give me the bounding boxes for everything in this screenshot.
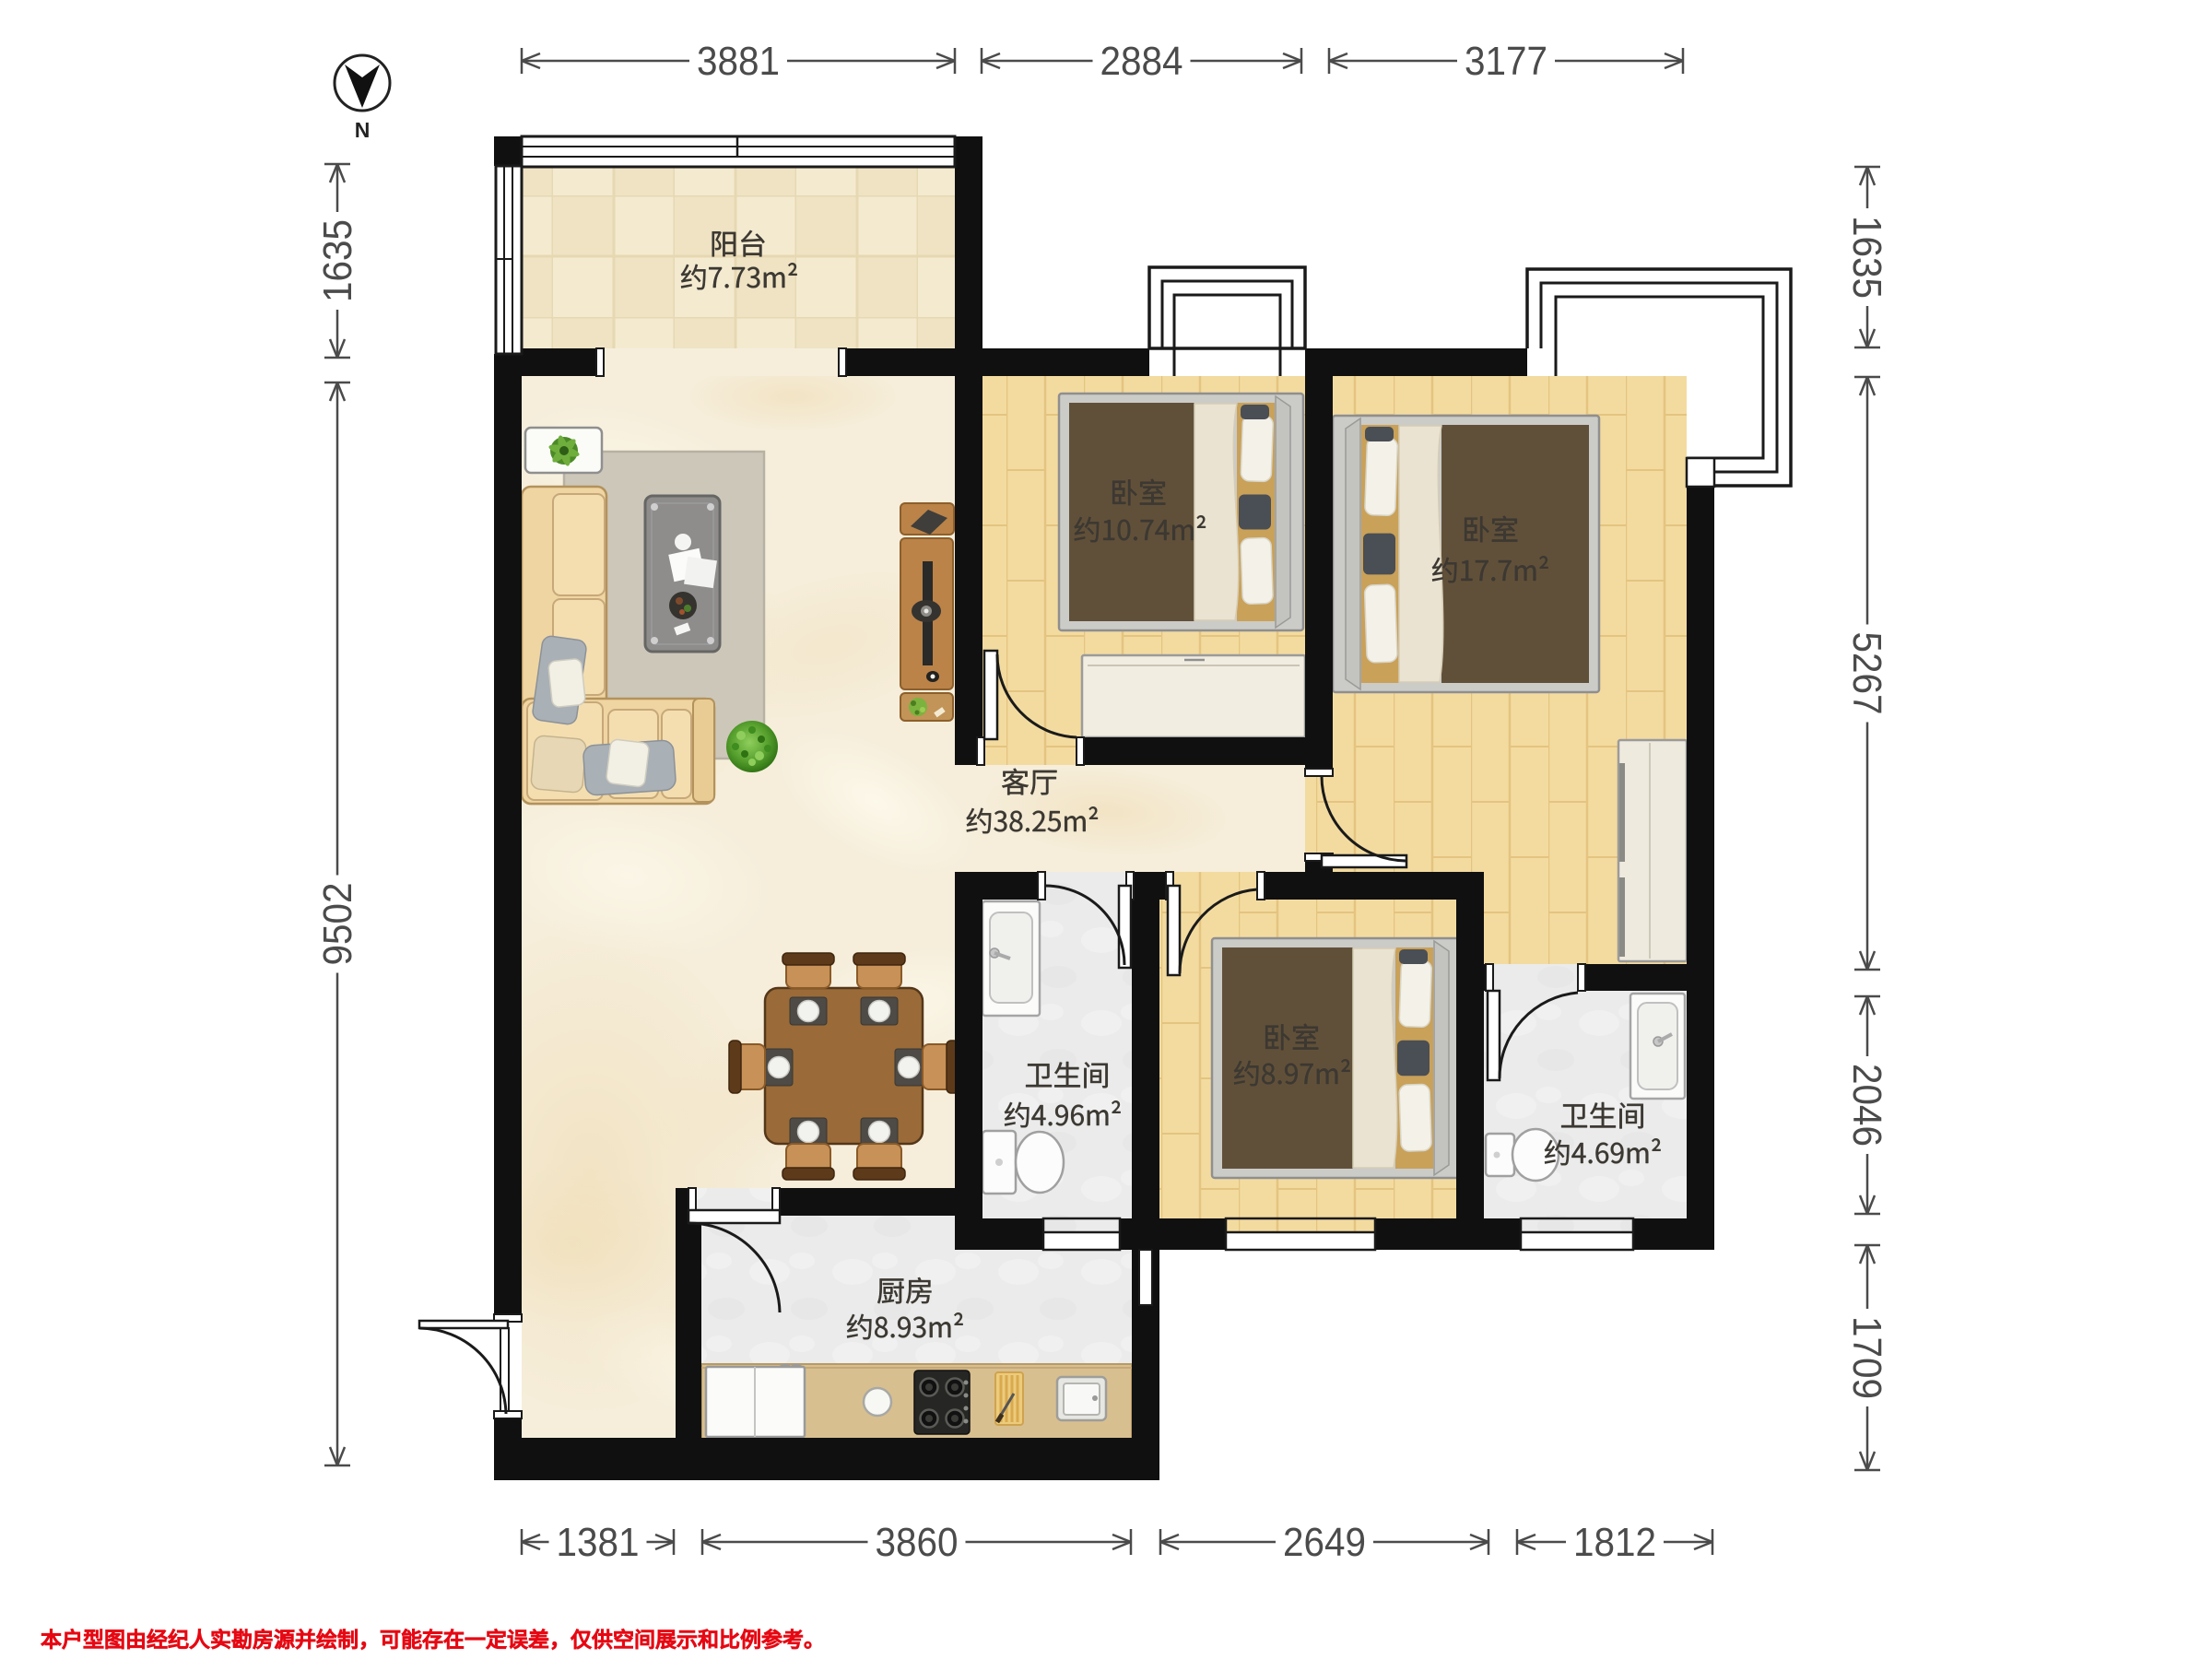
svg-text:1635: 1635 [315,219,360,302]
svg-text:N: N [355,118,371,142]
svg-text:1709: 1709 [1844,1316,1889,1399]
svg-text:3860: 3860 [876,1520,959,1565]
svg-text:2649: 2649 [1283,1520,1366,1565]
svg-text:9502: 9502 [315,883,360,966]
svg-text:1381: 1381 [557,1520,640,1565]
svg-text:5267: 5267 [1844,632,1889,715]
svg-text:1812: 1812 [1573,1520,1656,1565]
svg-text:1635: 1635 [1844,216,1889,299]
svg-text:3881: 3881 [697,39,780,84]
svg-text:2046: 2046 [1844,1064,1889,1147]
svg-text:3177: 3177 [1465,39,1547,84]
svg-text:2884: 2884 [1100,39,1183,84]
